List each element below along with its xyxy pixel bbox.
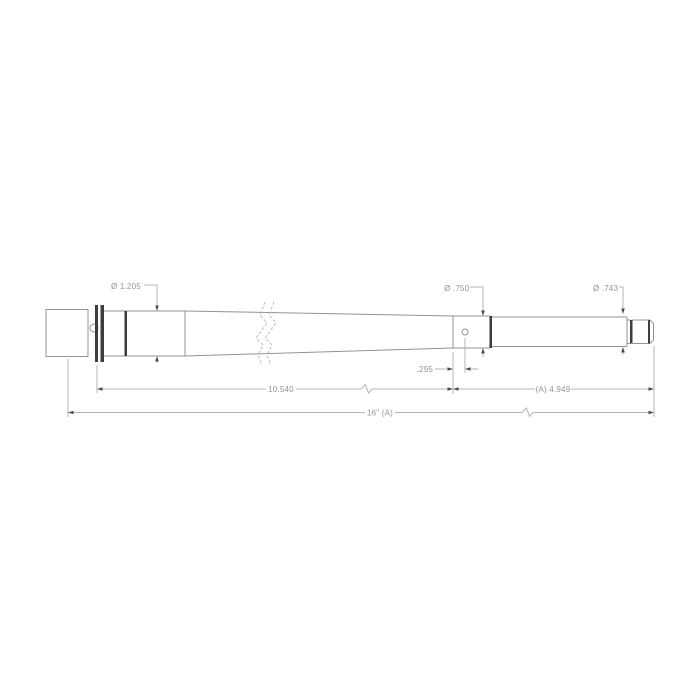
arrow-down-icon xyxy=(621,309,625,315)
arrow-up-icon xyxy=(155,356,159,362)
arrow-up-icon xyxy=(621,347,625,353)
arrow-right-icon xyxy=(649,387,655,391)
chamber-diameter-label: Ø 1.205 xyxy=(111,282,141,291)
gas-port-hole xyxy=(462,329,468,335)
arrow-right-icon xyxy=(448,367,454,371)
dim-line-break xyxy=(522,408,533,417)
dim-breech-to-gas: 10.540 xyxy=(97,385,453,395)
muzzle-crown-chamfer xyxy=(650,320,654,344)
journal-rear-edge xyxy=(490,316,493,348)
taper-section xyxy=(185,311,453,356)
barrel-profile xyxy=(46,302,654,365)
gas-to-muzzle-label: (A) 4.949 xyxy=(536,385,571,394)
extension-lines xyxy=(68,338,654,417)
breech-to-gas-label: 10.540 xyxy=(268,385,294,394)
dim-line-break xyxy=(361,385,372,394)
arrow-left-icon xyxy=(97,387,103,391)
chamber-ring xyxy=(125,311,128,356)
dim-muzzle-diameter: Ø .743 xyxy=(593,284,625,355)
straight-section xyxy=(492,317,631,347)
dim-gas-to-muzzle: (A) 4.949 xyxy=(453,385,654,394)
arrow-right-icon xyxy=(649,411,655,415)
arrow-down-icon xyxy=(481,311,485,317)
barrel-extension-block xyxy=(46,310,88,357)
arrow-left-icon xyxy=(453,387,459,391)
muzzle-thread-section xyxy=(630,320,654,344)
arrow-right-icon xyxy=(448,387,454,391)
overall-length-label: 16" (A) xyxy=(367,409,393,418)
barrel-technical-drawing: Ø 1.205 Ø .750 Ø .743 .295 xyxy=(0,0,700,700)
chamber-section xyxy=(104,311,185,356)
arrow-left-icon xyxy=(465,367,471,371)
dimensions: Ø 1.205 Ø .750 Ø .743 .295 xyxy=(68,282,654,418)
break-lines xyxy=(256,302,276,365)
muzzle-diameter-label: Ø .743 xyxy=(593,284,619,293)
arrow-up-icon xyxy=(481,348,485,354)
gas-journal-diameter-label: Ø .750 xyxy=(444,284,470,293)
dim-gas-port-offset: .295 xyxy=(417,365,478,374)
extension-flange xyxy=(95,305,104,362)
arrow-down-icon xyxy=(155,306,159,312)
gas-block-journal xyxy=(453,316,492,348)
arrow-left-icon xyxy=(68,411,74,415)
dim-chamber-diameter: Ø 1.205 xyxy=(111,282,159,363)
dim-gas-journal-diameter: Ø .750 xyxy=(444,284,485,357)
gas-port-offset-label: .295 xyxy=(417,365,434,374)
dim-overall-length: 16" (A) xyxy=(68,408,654,418)
